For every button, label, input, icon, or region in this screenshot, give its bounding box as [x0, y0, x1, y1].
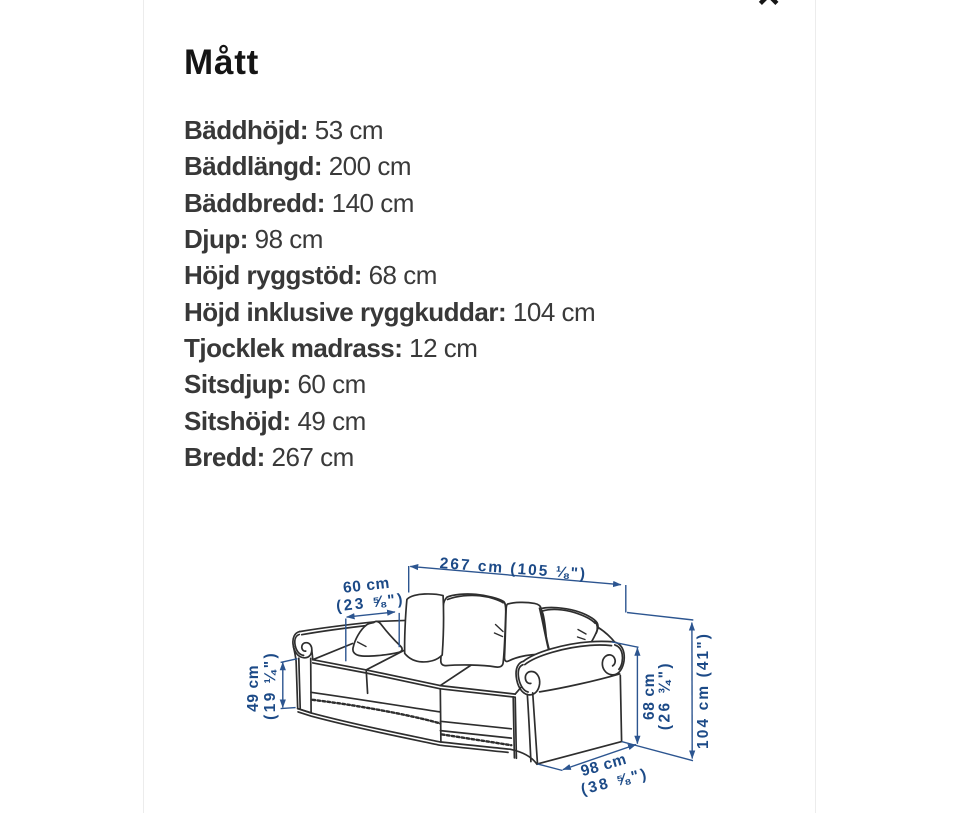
- svg-text:104 cm (41"): 104 cm (41"): [695, 632, 712, 749]
- svg-text:(26 ¾"): (26 ¾"): [657, 661, 674, 730]
- svg-text:267 cm (105 ⅛"): 267 cm (105 ⅛"): [439, 555, 588, 583]
- svg-text:49 cm: 49 cm: [245, 665, 262, 712]
- svg-text:(19 ¼"): (19 ¼"): [262, 651, 279, 720]
- svg-text:68 cm: 68 cm: [641, 673, 658, 720]
